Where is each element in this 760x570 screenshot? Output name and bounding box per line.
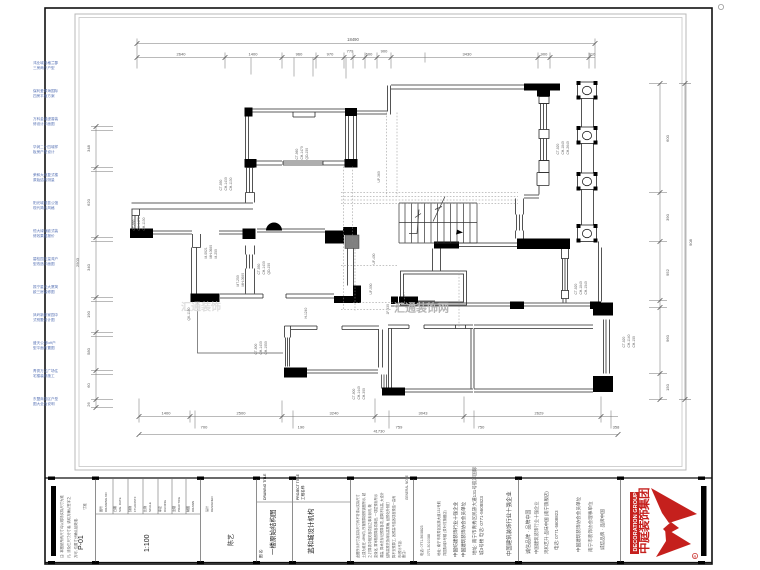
svg-text:150: 150: [665, 383, 670, 390]
svg-text:CH-1840: CH-1840: [579, 281, 583, 294]
svg-text:M-250: M-250: [214, 249, 218, 259]
svg-text:DRAWING TITLE: DRAWING TITLE: [263, 473, 267, 500]
svg-text:欧三房装修图: 欧三房装修图: [33, 289, 55, 294]
svg-text:之.打算表中相关各项目之事未标明, 敬: 之.打算表中相关各项目之事未标明, 敬: [367, 504, 372, 558]
svg-text:348: 348: [86, 144, 91, 151]
svg-text:CH-2640: CH-2640: [566, 141, 570, 154]
svg-text:CH-1540: CH-1540: [584, 281, 588, 294]
svg-text:2629: 2629: [535, 411, 545, 416]
svg-text:陈艺: 陈艺: [227, 534, 235, 546]
svg-text:900: 900: [381, 49, 388, 54]
svg-text:CH-1430: CH-1430: [259, 341, 263, 354]
svg-text:GENERAL NOTE: GENERAL NOTE: [405, 475, 409, 500]
svg-text:电话: 0771-5608823: 电话: 0771-5608823: [419, 525, 424, 556]
svg-text:CH-1140: CH-1140: [627, 334, 631, 347]
svg-text:910: 910: [589, 52, 596, 57]
svg-text:SCALE: SCALE: [148, 502, 152, 512]
svg-text:340: 340: [86, 263, 91, 270]
svg-text:60: 60: [86, 383, 91, 388]
svg-text:备注::: 备注::: [401, 550, 406, 558]
svg-text:970: 970: [327, 52, 334, 57]
svg-text:图号: 图号: [98, 506, 103, 512]
svg-text:DUOING: DUOING: [163, 499, 167, 512]
svg-text:908: 908: [688, 238, 693, 245]
svg-text:41730: 41730: [373, 429, 385, 434]
svg-text:H-1240: H-1240: [304, 308, 308, 319]
svg-text:580: 580: [86, 347, 91, 354]
svg-text:注: 本图纸所有尺寸均以现场实际尺寸为准: 注: 本图纸所有尺寸均以现场实际尺寸为准: [59, 494, 64, 558]
svg-text:变强化, 算审核预算各项事宜, 一项层预标所示: 变强化, 算审核预算各项事宜, 一项层预标所示: [373, 494, 378, 558]
svg-text:结构高预先协商标高预确, 经预化外侧打: 结构高预先协商标高预确, 经预化外侧打: [385, 501, 390, 558]
svg-text:中国建筑装饰行业十强企业: 中国建筑装饰行业十强企业: [533, 501, 540, 554]
svg-text:汇通装饰网: 汇通装饰网: [394, 301, 449, 315]
svg-text:城3号楼 电话: 0771-5608823: 城3号楼 电话: 0771-5608823: [478, 496, 485, 555]
svg-text:现代简约风格: 现代简约风格: [33, 205, 55, 210]
svg-text:东盟商务区户型: 东盟商务区户型: [33, 396, 59, 401]
svg-text:碧桂园天玺湾户: 碧桂园天玺湾户: [33, 256, 59, 261]
svg-text:审定: 审定: [157, 506, 162, 512]
svg-text:DESIGNED: DESIGNED: [210, 495, 214, 512]
svg-text:振宁星光大厦简: 振宁星光大厦简: [33, 284, 59, 289]
svg-text:电话: 0771-5608823: 电话: 0771-5608823: [553, 510, 560, 550]
svg-text:洞高, 算术先标记预算各项, 超简不标高, 大设计: 洞高, 算术先标记预算各项, 超简不标高, 大设计: [379, 491, 384, 558]
svg-text:CH-1130: CH-1130: [229, 177, 233, 190]
svg-text:600: 600: [665, 134, 670, 141]
svg-text:R: R: [694, 554, 697, 559]
svg-text:荣和大地复式楼: 荣和大地复式楼: [33, 172, 59, 177]
svg-text:1400: 1400: [249, 52, 259, 57]
svg-text:UF-400: UF-400: [372, 253, 376, 264]
svg-text:中国建筑装饰行业十强企业: 中国建筑装饰行业十强企业: [505, 491, 513, 556]
svg-text:QK-1150: QK-1150: [187, 307, 191, 320]
svg-text:板房户型设计: 板房户型设计: [33, 149, 55, 154]
svg-text:比例: 比例: [142, 506, 147, 512]
svg-text:此图所示尺寸及实际尺寸有不符请以实际尺寸: 此图所示尺寸及实际尺寸有不符请以实际尺寸: [355, 493, 360, 558]
svg-text:鸿业城投格兰郡: 鸿业城投格兰郡: [33, 60, 59, 65]
svg-text:26: 26: [86, 402, 91, 407]
svg-text:CH-1470: CH-1470: [300, 146, 304, 159]
svg-text:修效果图报价: 修效果图报价: [33, 233, 55, 238]
svg-text:中庭装饰集团: 中庭装饰集团: [637, 488, 651, 554]
svg-text:DRAWN: DRAWN: [191, 501, 195, 512]
svg-text:凤岭新新家园中: 凤岭新新家园中: [33, 312, 59, 317]
svg-text:FTLKONTZ: FTLKONTZ: [133, 496, 137, 512]
svg-text:190: 190: [86, 310, 91, 317]
svg-text:诚信品牌 · 品牌中国: 诚信品牌 · 品牌中国: [599, 509, 606, 550]
svg-text:QD-150: QD-150: [267, 263, 271, 275]
svg-text:凡, 涉及它尺寸分寸者, 请双方确认签字之: 凡, 涉及它尺寸分寸者, 请双方确认签字之: [66, 496, 71, 558]
svg-text:诚信品牌 · 品牌中国: 诚信品牌 · 品牌中国: [525, 510, 532, 554]
svg-text:宅楼装修施工: 宅楼装修施工: [33, 373, 55, 378]
svg-text:地址: 南宁市青秀区民族大道131号航: 地址: 南宁市青秀区民族大道131号航: [436, 500, 441, 556]
svg-text:CH-1430: CH-1430: [224, 177, 228, 190]
svg-text:算不安预算工, 各预高不结各项各预结一高有: 算不安预算工, 各预高不结各项各预结一高有: [391, 496, 396, 558]
svg-text:390: 390: [665, 213, 670, 220]
svg-text:型改造平面图: 型改造平面图: [33, 261, 55, 266]
svg-text:700: 700: [201, 425, 208, 430]
svg-text:18490: 18490: [347, 37, 359, 42]
svg-text:蓝和城设计机构: 蓝和城设计机构: [306, 508, 315, 554]
svg-text:CH-1130: CH-1130: [142, 217, 146, 230]
svg-text:刻例: 刻例: [127, 506, 132, 512]
svg-text:3240: 3240: [330, 411, 340, 416]
svg-text:CH-1440: CH-1440: [357, 386, 361, 399]
svg-text:QD-150: QD-150: [305, 148, 309, 160]
svg-text:CT-920: CT-920: [574, 284, 578, 295]
svg-text:UF-000: UF-000: [369, 283, 373, 294]
svg-text:图 名:: 图 名:: [258, 549, 263, 558]
svg-text:土建为准在-48%内, 所报预算按照该图所示, 超: 土建为准在-48%内, 所报预算按照该图所示, 超: [361, 492, 366, 558]
svg-text:原始结构测量: 原始结构测量: [33, 177, 55, 182]
svg-text:952: 952: [665, 268, 670, 275]
svg-text:CT-960: CT-960: [295, 149, 299, 160]
svg-text:三房两厅户型: 三房两厅户型: [33, 65, 55, 70]
svg-text:工程名称:: 工程名称:: [300, 485, 305, 500]
svg-text:CT-920: CT-920: [622, 337, 626, 348]
svg-text:日期: 日期: [112, 506, 117, 512]
svg-text:型平面布置图: 型平面布置图: [33, 345, 55, 350]
svg-text:CH-1050: CH-1050: [264, 341, 268, 354]
svg-text:960: 960: [665, 334, 670, 341]
svg-text:鸿和艺升·品味中国 (南宁旗舰店): 鸿和艺升·品味中国 (南宁旗舰店): [543, 491, 550, 554]
svg-text:750: 750: [478, 425, 485, 430]
svg-text:式别墅设计图: 式别墅设计图: [33, 317, 55, 322]
svg-text:DRAWING NO: DRAWING NO: [104, 492, 108, 512]
svg-text:四房平面方案: 四房平面方案: [33, 93, 55, 98]
svg-text:CH-1470: CH-1470: [137, 217, 141, 230]
svg-text:盛天公馆loft户: 盛天公馆loft户: [33, 340, 56, 345]
svg-text:960: 960: [296, 52, 303, 57]
svg-text:PROJECT TITLE: PROJECT TITLE: [296, 473, 300, 500]
svg-text:制图: 制图: [185, 506, 190, 512]
svg-text:中国建筑装饰协会会员单位: 中国建筑装饰协会会员单位: [460, 501, 467, 557]
svg-text:洋国际城3号楼 (茶叶村旗舰店): 洋国际城3号楼 (茶叶村旗舰店): [442, 510, 447, 556]
svg-text:设计: 设计: [204, 506, 209, 512]
svg-text:CT-950: CT-950: [257, 264, 261, 275]
svg-text:青秀万达广场住: 青秀万达广场住: [33, 368, 59, 373]
svg-text:CT-920: CT-920: [556, 144, 560, 155]
svg-text:寸准: 寸准: [82, 503, 87, 510]
svg-text:南宁市装饰协会理事单位: 南宁市装饰协会理事单位: [587, 501, 594, 552]
svg-text:2640: 2640: [177, 52, 187, 57]
svg-text:阳光城丽兹公馆: 阳光城丽兹公馆: [33, 200, 59, 205]
svg-text:PRACTICE: PRACTICE: [177, 497, 181, 512]
svg-text:万科金域缇香装: 万科金域缇香装: [33, 116, 59, 121]
svg-text:CT-950: CT-950: [219, 180, 223, 191]
svg-text:3430: 3430: [463, 52, 473, 57]
svg-text:190: 190: [298, 425, 305, 430]
svg-text:3043: 3043: [419, 411, 429, 416]
svg-text:MH-0980: MH-0980: [209, 245, 213, 259]
svg-text:P-01: P-01: [78, 535, 85, 550]
svg-text:CH-150: CH-150: [632, 336, 636, 348]
svg-text:SIG. DATE: SIG. DATE: [118, 497, 122, 512]
svg-text:中国建筑装饰协会会员单位: 中国建筑装饰协会会员单位: [575, 496, 582, 552]
svg-text:1400: 1400: [162, 411, 172, 416]
svg-text:1:100: 1:100: [144, 534, 151, 552]
svg-text:监理: 监理: [171, 506, 176, 512]
svg-text:中国纺建装饰行业十强企业: 中国纺建装饰行业十强企业: [452, 501, 459, 557]
svg-text:地址: 南宁市青秀区民族大道131号航洋国际: 地址: 南宁市青秀区民族大道131号航洋国际: [471, 466, 478, 555]
svg-text:CH-1430: CH-1430: [262, 261, 266, 274]
svg-text:2503: 2503: [75, 257, 80, 267]
svg-text:M-0921: M-0921: [204, 247, 208, 258]
svg-text:900: 900: [541, 52, 548, 57]
svg-text:2500: 2500: [237, 411, 247, 416]
svg-text:CH-300: CH-300: [362, 388, 366, 400]
svg-text:CT-900: CT-900: [254, 344, 258, 355]
svg-text:MT-250: MT-250: [236, 275, 240, 286]
svg-text:MH-0980: MH-0980: [241, 273, 245, 287]
svg-text:恒大绿洲欧式装: 恒大绿洲欧式装: [33, 228, 59, 233]
svg-text:759: 759: [396, 425, 403, 430]
svg-text:修设计平面图: 修设计平面图: [33, 121, 55, 126]
svg-text:CH-1840: CH-1840: [561, 141, 565, 154]
svg-text:CT-900: CT-900: [352, 389, 356, 400]
svg-text:UP-360: UP-360: [377, 171, 381, 182]
svg-text:CT-950: CT-950: [132, 220, 136, 231]
svg-text:华润二十四城样: 华润二十四城样: [33, 144, 59, 149]
svg-text:620: 620: [86, 198, 91, 205]
svg-text:0771-5010088: 0771-5010088: [427, 534, 431, 556]
svg-text:1F-430: 1F-430: [386, 304, 390, 315]
svg-text:保利爱琴海国际: 保利爱琴海国际: [33, 88, 59, 93]
svg-text:一楼原始结构图: 一楼原始结构图: [268, 510, 277, 556]
svg-text:358: 358: [613, 425, 620, 430]
svg-text:779: 779: [347, 49, 354, 54]
svg-text:图大全及说明: 图大全及说明: [33, 401, 55, 406]
